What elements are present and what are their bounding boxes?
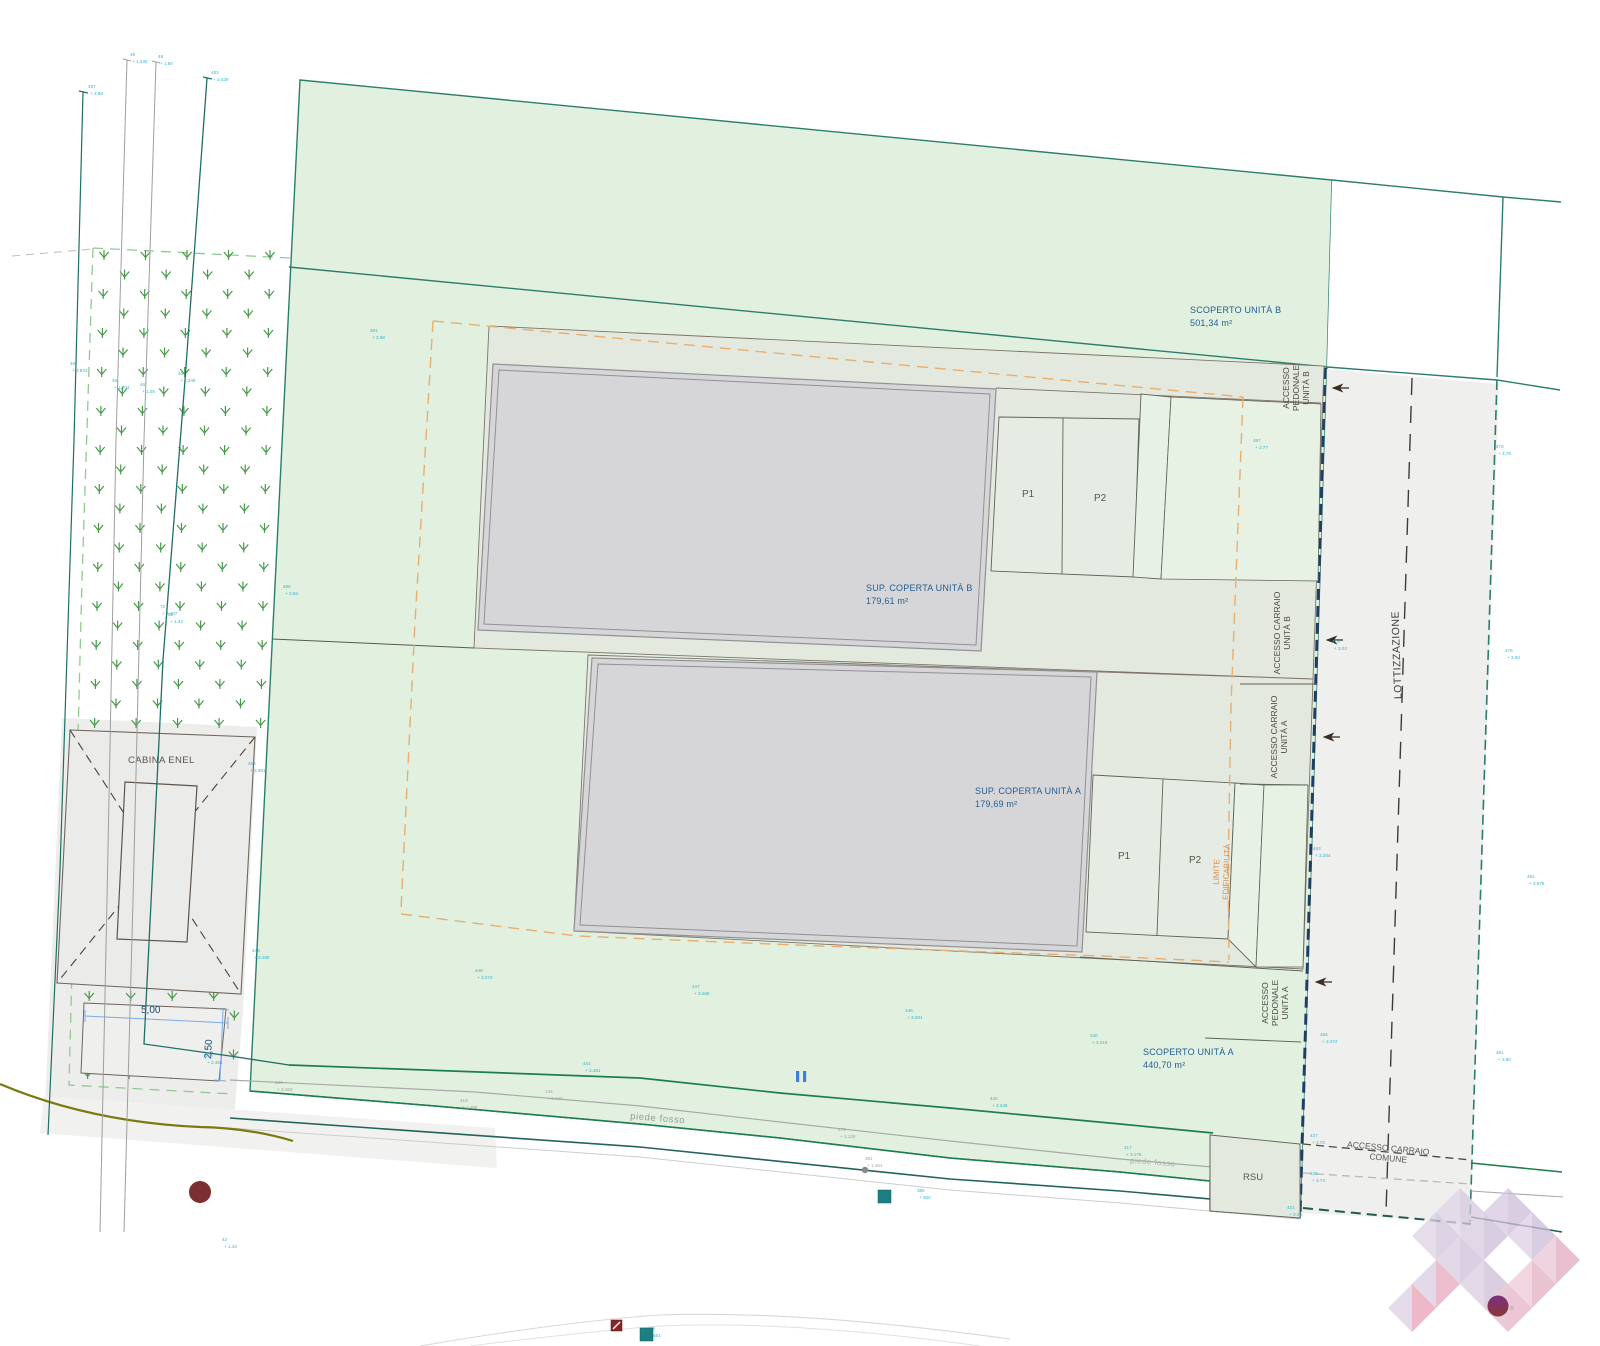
svg-text:5,00: 5,00	[141, 1005, 161, 1016]
svg-text:+ 3.60: + 3.60	[1507, 655, 1520, 660]
svg-text:UNITÀ A: UNITÀ A	[1280, 986, 1290, 1019]
svg-text:+ 3.56: + 3.56	[285, 591, 298, 596]
svg-text:+ 3.78: + 3.78	[1498, 451, 1511, 456]
svg-text:+ 3.272: + 3.272	[477, 975, 493, 980]
svg-text:PEDONALE: PEDONALE	[1270, 980, 1280, 1027]
svg-text:440: 440	[1090, 1033, 1098, 1038]
svg-text:487: 487	[1253, 438, 1261, 443]
svg-text:+ 3.481: + 3.481	[585, 1068, 601, 1073]
svg-text:417: 417	[1124, 1145, 1132, 1150]
svg-text:443: 443	[205, 1053, 213, 1058]
svg-text:+ 1.05: + 1.05	[142, 389, 155, 394]
svg-text:ACCESSO: ACCESSO	[1260, 982, 1270, 1024]
svg-text:CABINA ENEL: CABINA ENEL	[128, 755, 195, 766]
svg-text:+ 3.288: + 3.288	[254, 955, 270, 960]
svg-text:481: 481	[1496, 1050, 1504, 1055]
svg-text:UNITÀ B: UNITÀ B	[1282, 616, 1292, 650]
svg-text:+ 3.348: + 3.348	[992, 1103, 1008, 1108]
svg-text:+ 3.98: + 3.98	[372, 335, 385, 340]
svg-text:UNITÀ A: UNITÀ A	[1279, 720, 1289, 753]
svg-text:448: 448	[475, 968, 483, 973]
svg-text:+ 3.128: + 3.128	[840, 1134, 856, 1139]
svg-text:+ 3.458: + 3.458	[207, 1060, 223, 1065]
svg-text:P1: P1	[1022, 489, 1035, 500]
svg-text:SUP. COPERTA UNITÀ B: SUP. COPERTA UNITÀ B	[866, 583, 973, 593]
svg-text:+ 3.281: + 3.281	[907, 1015, 923, 1020]
svg-text:144: 144	[275, 1080, 283, 1085]
svg-text:+ 1.451: + 1.451	[867, 1163, 883, 1168]
svg-text:32: 32	[168, 612, 174, 617]
svg-text:441: 441	[583, 1061, 591, 1066]
svg-text:+ 3.349: + 3.349	[180, 378, 196, 383]
svg-text:447: 447	[692, 984, 700, 989]
svg-text:+ 3.88: + 3.88	[90, 91, 103, 96]
svg-text:SCOPERTO UNITÀ B: SCOPERTO UNITÀ B	[1190, 305, 1281, 315]
svg-text:491: 491	[370, 328, 378, 333]
svg-text:+ 1.42: + 1.42	[170, 619, 183, 624]
svg-text:+ 1.42: + 1.42	[224, 1244, 237, 1249]
svg-text:501,34 m²: 501,34 m²	[1190, 318, 1232, 328]
svg-text:+ 3.374: + 3.374	[1322, 1039, 1338, 1044]
svg-text:440: 440	[990, 1096, 998, 1101]
svg-text:476: 476	[1505, 648, 1513, 653]
svg-text:®: ®	[1510, 1305, 1514, 1312]
svg-text:498: 498	[248, 761, 256, 766]
svg-text:+ 3.268: + 3.268	[694, 991, 710, 996]
svg-text:489: 489	[283, 584, 291, 589]
svg-text:+ 3.578: + 3.578	[1529, 881, 1545, 886]
svg-text:+ 3.77: + 3.77	[1255, 445, 1268, 450]
svg-text:48: 48	[112, 378, 118, 383]
svg-text:487: 487	[88, 84, 96, 89]
svg-text:+ 3.463: + 3.463	[547, 1096, 563, 1101]
svg-text:46: 46	[70, 361, 76, 366]
svg-text:P1: P1	[1118, 851, 1131, 862]
svg-text:+ 3.80: + 3.80	[1498, 1057, 1511, 1062]
svg-text:+ 1.80: + 1.80	[160, 61, 173, 66]
svg-text:448: 448	[252, 948, 260, 953]
svg-text:+ 3.46: + 3.46	[1289, 1212, 1302, 1217]
svg-text:46: 46	[140, 382, 146, 387]
svg-text:478: 478	[1332, 639, 1340, 644]
svg-text:456: 456	[1320, 1032, 1328, 1037]
svg-text:+ 3.823: + 3.823	[72, 368, 88, 373]
svg-text:ACCESSO: ACCESSO	[1281, 367, 1291, 409]
svg-text:478: 478	[838, 1127, 846, 1132]
svg-text:476: 476	[1496, 444, 1504, 449]
svg-text:UNITÀ B: UNITÀ B	[1301, 371, 1311, 405]
svg-text:+ 3.70: + 3.70	[1312, 1140, 1325, 1145]
svg-text:+ 1.404: + 1.404	[114, 385, 130, 390]
svg-text:42: 42	[222, 1237, 228, 1242]
svg-text:RSU: RSU	[1243, 1172, 1263, 1183]
svg-text:LIMITE: LIMITE	[1212, 859, 1222, 885]
svg-text:+ 4.486: + 4.486	[462, 1105, 478, 1110]
svg-text:P2: P2	[1189, 855, 1202, 866]
svg-text:+ 3.316: + 3.316	[1092, 1040, 1108, 1045]
svg-text:+ 3.463: + 3.463	[277, 1087, 293, 1092]
svg-text:463: 463	[1313, 846, 1321, 851]
svg-text:45: 45	[178, 371, 184, 376]
svg-text:P2: P2	[1094, 493, 1107, 504]
svg-text:385: 385	[917, 1188, 925, 1193]
svg-text:48: 48	[130, 52, 136, 57]
svg-text:421: 421	[1287, 1205, 1295, 1210]
svg-text:SUP. COPERTA UNITÀ A: SUP. COPERTA UNITÀ A	[975, 786, 1081, 796]
svg-text:440,70 m²: 440,70 m²	[1143, 1060, 1185, 1070]
svg-text:48: 48	[158, 54, 164, 59]
svg-text:72: 72	[160, 604, 166, 609]
svg-text:+ 3.74: + 3.74	[1312, 1178, 1325, 1183]
svg-text:436: 436	[1310, 1171, 1318, 1176]
svg-text:+ 3.381: + 3.381	[250, 768, 266, 773]
svg-text:PEDONALE: PEDONALE	[1291, 365, 1301, 412]
svg-text:+ 3.03: + 3.03	[1334, 646, 1347, 651]
svg-text:ACCESSO CARRAIO: ACCESSO CARRAIO	[1272, 591, 1282, 674]
svg-text:+ 1.430: + 1.430	[132, 59, 148, 64]
svg-text:+ 3.384: + 3.384	[1315, 853, 1331, 858]
svg-text:381: 381	[865, 1156, 873, 1161]
svg-text:144: 144	[545, 1089, 553, 1094]
svg-text:+ 3.178: + 3.178	[1126, 1152, 1142, 1157]
svg-text:+ 3.428: + 3.428	[213, 77, 229, 82]
svg-text:179,69 m²: 179,69 m²	[975, 799, 1017, 809]
svg-text:419: 419	[460, 1098, 468, 1103]
svg-text:482: 482	[1527, 874, 1535, 879]
svg-text:446: 446	[905, 1008, 913, 1013]
svg-text:179,61 m²: 179,61 m²	[866, 596, 908, 606]
svg-text:ACCESSO CARRAIO: ACCESSO CARRAIO	[1269, 695, 1279, 778]
svg-text:483: 483	[211, 70, 219, 75]
svg-text:SCOPERTO UNITÀ A: SCOPERTO UNITÀ A	[1143, 1047, 1234, 1057]
svg-text:+ 550: + 550	[919, 1195, 931, 1200]
svg-text:437: 437	[1310, 1133, 1318, 1138]
